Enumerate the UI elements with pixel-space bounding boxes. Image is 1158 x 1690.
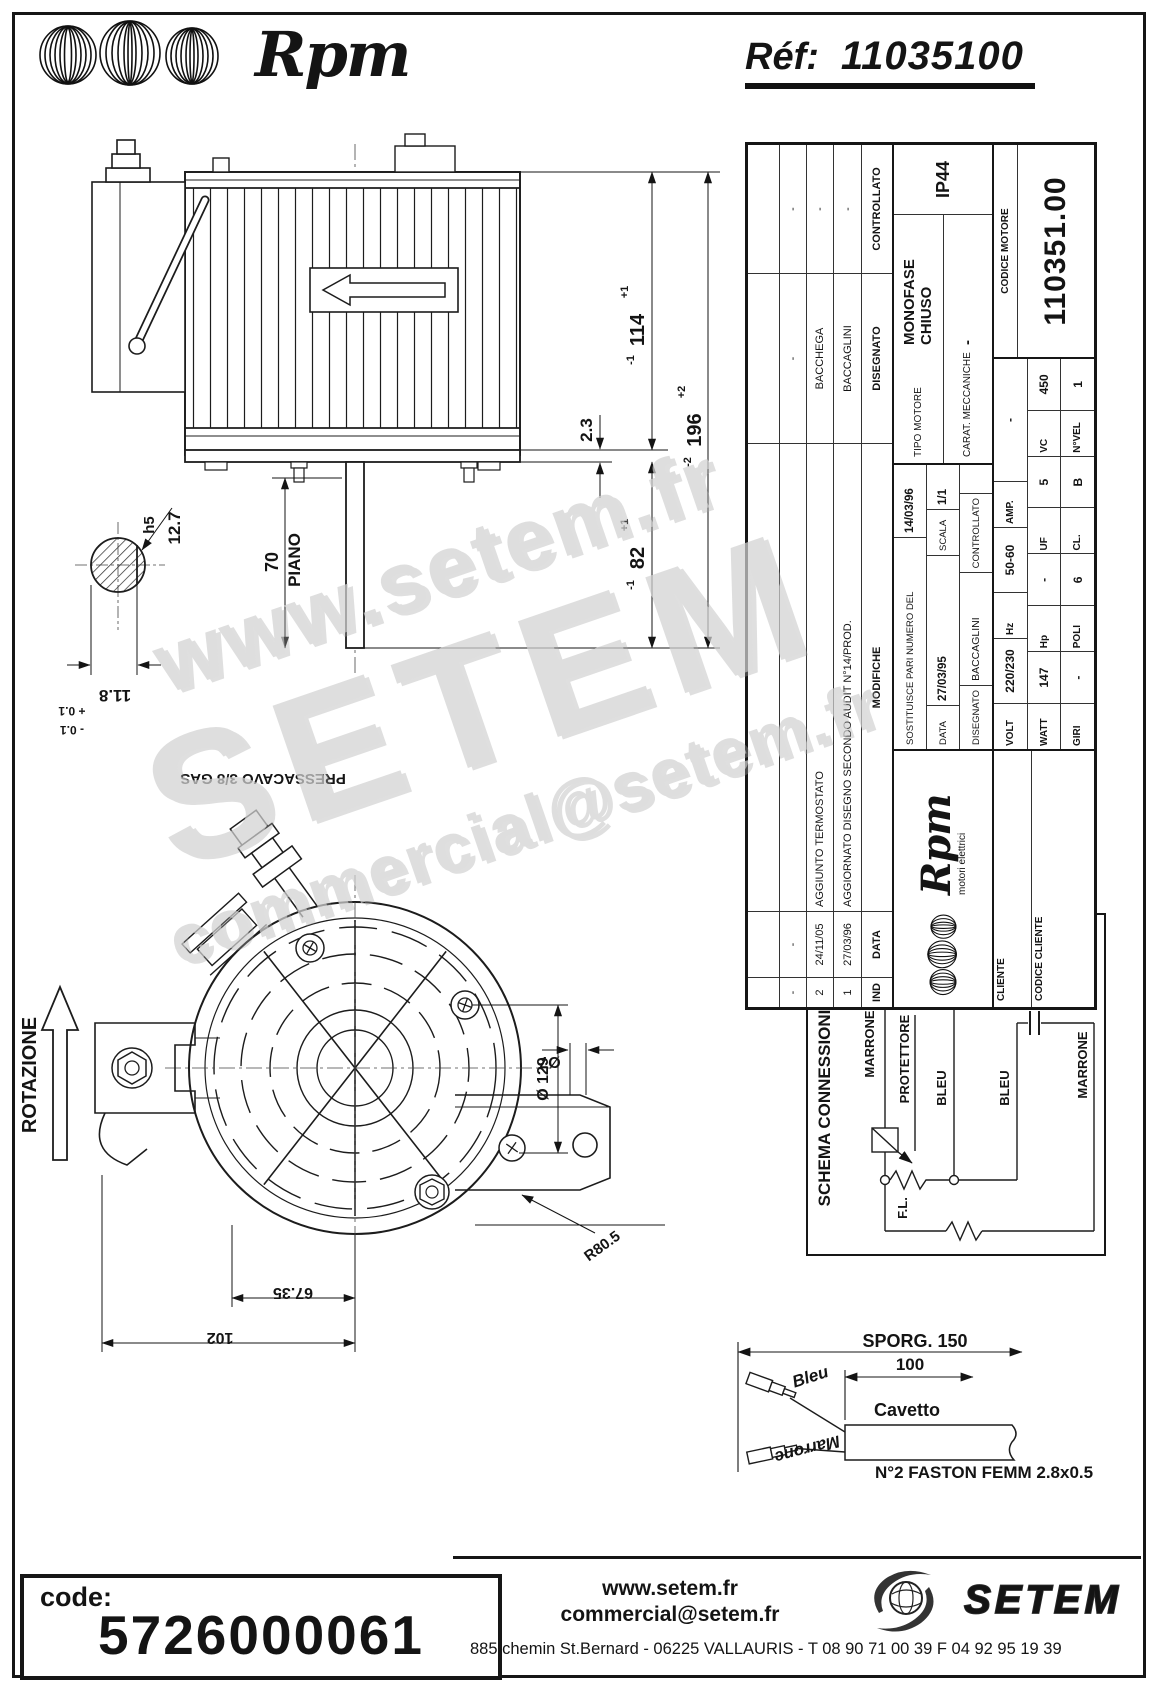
motor-type-block: TIPO MOTORE MONOFASE CHIUSO CARAT. MECCA… bbox=[894, 145, 992, 463]
dim-2.3: 2.3 bbox=[520, 415, 612, 498]
setem-logo: SETEM bbox=[865, 1565, 1143, 1637]
dim-r80.5-value: R80.5 bbox=[581, 1228, 623, 1265]
carat-label: CARAT. MECCANICHE bbox=[962, 345, 973, 463]
dim-67.35-value: 67.35 bbox=[273, 1284, 313, 1301]
codice-motore-label: CODICE MOTORE bbox=[994, 145, 1018, 357]
sostituisce-value: 14/03/96 bbox=[894, 465, 926, 537]
title-block-middle: Rpm motori elettrici SOSTITUISCE PARI NU… bbox=[894, 145, 994, 1007]
setem-wordmark: SETEM bbox=[943, 1573, 1143, 1629]
dim-114: 114 +1 -1 bbox=[520, 172, 720, 450]
ref-value: 11035100 bbox=[841, 34, 1024, 79]
rpm-brand-text: Rpm bbox=[919, 794, 955, 895]
reference-block: Réf: 11035100 bbox=[745, 34, 1035, 89]
sostituisce-label: SOSTITUISCE PARI NUMERO DEL bbox=[894, 537, 926, 749]
faston-label: N°2 FASTON FEMM 2.8x0.5 bbox=[875, 1463, 1093, 1482]
dim-82-tol-plus: +1 bbox=[619, 519, 631, 532]
revision-row bbox=[748, 145, 780, 1007]
protettore-label: PROTETTORE bbox=[897, 1014, 912, 1103]
dim-82: 82 +1 -1 bbox=[364, 462, 720, 648]
dim-r80.5: R80.5 bbox=[475, 1195, 665, 1265]
rotation-arrow: ROTAZIONE bbox=[20, 987, 78, 1160]
mounting-bracket-front bbox=[95, 1023, 220, 1165]
ref-label: Réf: bbox=[745, 36, 819, 79]
revision-row: - - - - bbox=[780, 145, 807, 1007]
direction-arrow-plate bbox=[310, 268, 458, 312]
dim-82-tol-minus: -1 bbox=[625, 580, 637, 590]
dim-196-tol-minus: -2 bbox=[682, 457, 694, 467]
rotation-arrow-icon bbox=[42, 987, 78, 1160]
dim-196: 196 +2 -2 bbox=[676, 172, 708, 648]
dim-114-value: 114 bbox=[627, 313, 649, 346]
thermostat-pocket bbox=[182, 893, 267, 975]
tipo-motore-value: MONOFASE CHIUSO bbox=[901, 215, 935, 345]
rotation-label: ROTAZIONE bbox=[20, 1017, 41, 1133]
shaft-section-detail: h5 12.7 11.8 + 0.1 - 0.1 bbox=[58, 508, 184, 737]
footer-divider bbox=[453, 1556, 1141, 1559]
footer-email: commercial@setem.fr bbox=[500, 1602, 840, 1628]
fl-label: F.L. bbox=[895, 1197, 910, 1219]
codice-motore-value: 110351.00 bbox=[1018, 145, 1094, 357]
protection-class: IP44 bbox=[894, 145, 992, 215]
bleu-label-1: BLEU bbox=[934, 1070, 949, 1105]
dim-12.7-value: 12.7 bbox=[165, 511, 184, 544]
revision-row: 1 27/03/96 AGGIORNATO DISEGNO SECONDO AU… bbox=[834, 145, 862, 1007]
dim-67.35: 67.35 bbox=[232, 1225, 355, 1307]
shaft bbox=[346, 462, 364, 648]
dim-196-tol-plus: +2 bbox=[676, 386, 688, 399]
flange-bolt bbox=[291, 462, 307, 482]
data-label: DATA bbox=[927, 705, 959, 749]
elec-row-giri: GIRI - POLI 6 CL. B N°VEL 1 bbox=[1061, 359, 1094, 749]
sporg-dim-label: SPORG. 150 bbox=[862, 1331, 967, 1351]
dim-114-tol-minus: -1 bbox=[625, 355, 637, 365]
dim-102-value: 102 bbox=[207, 1329, 234, 1346]
dim-2.3-value: 2.3 bbox=[577, 418, 596, 442]
side-view-drawing: 114 +1 -1 82 +1 -1 196 +2 -2 bbox=[20, 130, 740, 780]
hex-bolt bbox=[415, 1175, 449, 1209]
dim-dia129-value: Ø 129 bbox=[535, 1057, 552, 1101]
rpm-logo: Rpm bbox=[30, 20, 409, 90]
title-block-wrap: - - - - 2 24/11/05 AGGIUNTO TERMOSTATO B… bbox=[745, 142, 1101, 1014]
footer-website: www.setem.fr bbox=[500, 1576, 840, 1602]
bleu-label-2: BLEU bbox=[997, 1070, 1012, 1105]
rpm-coils-icon bbox=[905, 903, 981, 999]
rpm-coils-icon bbox=[30, 20, 245, 90]
electrical-data-table: VOLT 220/230 Hz 50-60 AMP. - WATT 147 Hp… bbox=[994, 357, 1094, 749]
controllato-label: CONTROLLATO bbox=[960, 493, 992, 572]
dim-11.8-tol-plus: + 0.1 bbox=[58, 704, 85, 718]
scala-value: 1/1 bbox=[927, 465, 959, 509]
dim-114-tol-plus: +1 bbox=[619, 286, 631, 299]
controllato-value bbox=[960, 465, 992, 493]
elec-row-watt: WATT 147 Hp - UF 5 VC 450 bbox=[1028, 359, 1062, 749]
elec-row-volt: VOLT 220/230 Hz 50-60 AMP. - bbox=[994, 359, 1028, 749]
marrone-right-label: MARRONE bbox=[1075, 1031, 1090, 1098]
cavetto-label: Cavetto bbox=[874, 1400, 940, 1420]
revision-header-row: IND DATA MODIFICHE DISEGNATO CONTROLLATO bbox=[862, 145, 892, 1007]
motor-code-block: CODICE MOTORE 110351.00 bbox=[994, 145, 1094, 357]
pressacavo-label: PRESSACAVO 3/8 GAS bbox=[180, 770, 346, 787]
cable-body bbox=[845, 1425, 1016, 1460]
mounting-foot bbox=[455, 1095, 610, 1190]
schema-title: SCHEMA CONNESSIONI bbox=[815, 1010, 834, 1207]
cliente-label: CLIENTE bbox=[994, 751, 1032, 1007]
setem-brand-text: SETEM bbox=[964, 1578, 1122, 1622]
rpm-logo-small: Rpm motori elettrici bbox=[894, 749, 992, 1007]
drawing-info: SOSTITUISCE PARI NUMERO DEL 14/03/96 DAT… bbox=[894, 463, 992, 749]
disegnato-label: DISEGNATO bbox=[960, 685, 992, 749]
customer-block: CLIENTE CODICE CLIENTE bbox=[994, 749, 1094, 1007]
cable-detail: SPORG. 150 100 Cavetto Bleu Marrone N°2 … bbox=[660, 1320, 1150, 1490]
setem-swoosh-icon bbox=[865, 1565, 943, 1637]
footer-address: 885 chemin St.Bernard - 06225 VALLAURIS … bbox=[470, 1640, 1130, 1659]
scala-label: SCALA bbox=[927, 509, 959, 555]
code-box: code: 5726000061 bbox=[20, 1574, 502, 1680]
marrone-wire-label: Marrone bbox=[773, 1431, 843, 1467]
dim-70-piano: 70 PIANO bbox=[262, 478, 342, 648]
title-block-bottom: CLIENTE CODICE CLIENTE VOLT 220/230 Hz 5… bbox=[994, 145, 1094, 1007]
footer-links: www.setem.fr commercial@setem.fr bbox=[500, 1576, 840, 1629]
cover-screw bbox=[296, 934, 324, 962]
dim-11.8-value: 11.8 bbox=[99, 686, 131, 705]
piano-label: PIANO bbox=[285, 533, 304, 587]
data-value: 27/03/95 bbox=[927, 555, 959, 705]
bleu-wire-label: Bleu bbox=[790, 1362, 831, 1392]
dim-196-value: 196 bbox=[684, 413, 706, 446]
drawing-sheet: Rpm Réf: 11035100 bbox=[0, 0, 1158, 1690]
dim-11.8-tol-minus: - 0.1 bbox=[60, 723, 84, 737]
front-view-drawing: PRESSACAVO 3/8 GAS bbox=[20, 755, 720, 1375]
disegnato-value: BACCAGLINI bbox=[960, 572, 992, 685]
dim-70-value: 70 bbox=[262, 552, 282, 572]
dim-102: 102 bbox=[102, 1175, 355, 1352]
flange-bolt bbox=[461, 462, 477, 482]
dim-82-value: 82 bbox=[627, 547, 649, 569]
rpm-brand-text: Rpm bbox=[255, 24, 409, 86]
revision-table: - - - - 2 24/11/05 AGGIUNTO TERMOSTATO B… bbox=[748, 145, 894, 1007]
marrone-left-label: MARRONE bbox=[862, 1010, 877, 1077]
hex-bolt bbox=[112, 1048, 152, 1088]
cover-screw bbox=[499, 1135, 525, 1161]
tipo-motore-label: TIPO MOTORE bbox=[913, 345, 924, 463]
dim-h5-label: h5 bbox=[141, 516, 158, 534]
dim-100-label: 100 bbox=[896, 1355, 924, 1374]
title-block: - - - - 2 24/11/05 AGGIUNTO TERMOSTATO B… bbox=[745, 142, 1097, 1010]
revision-row: 2 24/11/05 AGGIUNTO TERMOSTATO BACCHEGA … bbox=[807, 145, 834, 1007]
codice-cliente-label: CODICE CLIENTE bbox=[1032, 751, 1094, 1007]
carat-value: - bbox=[959, 340, 976, 345]
